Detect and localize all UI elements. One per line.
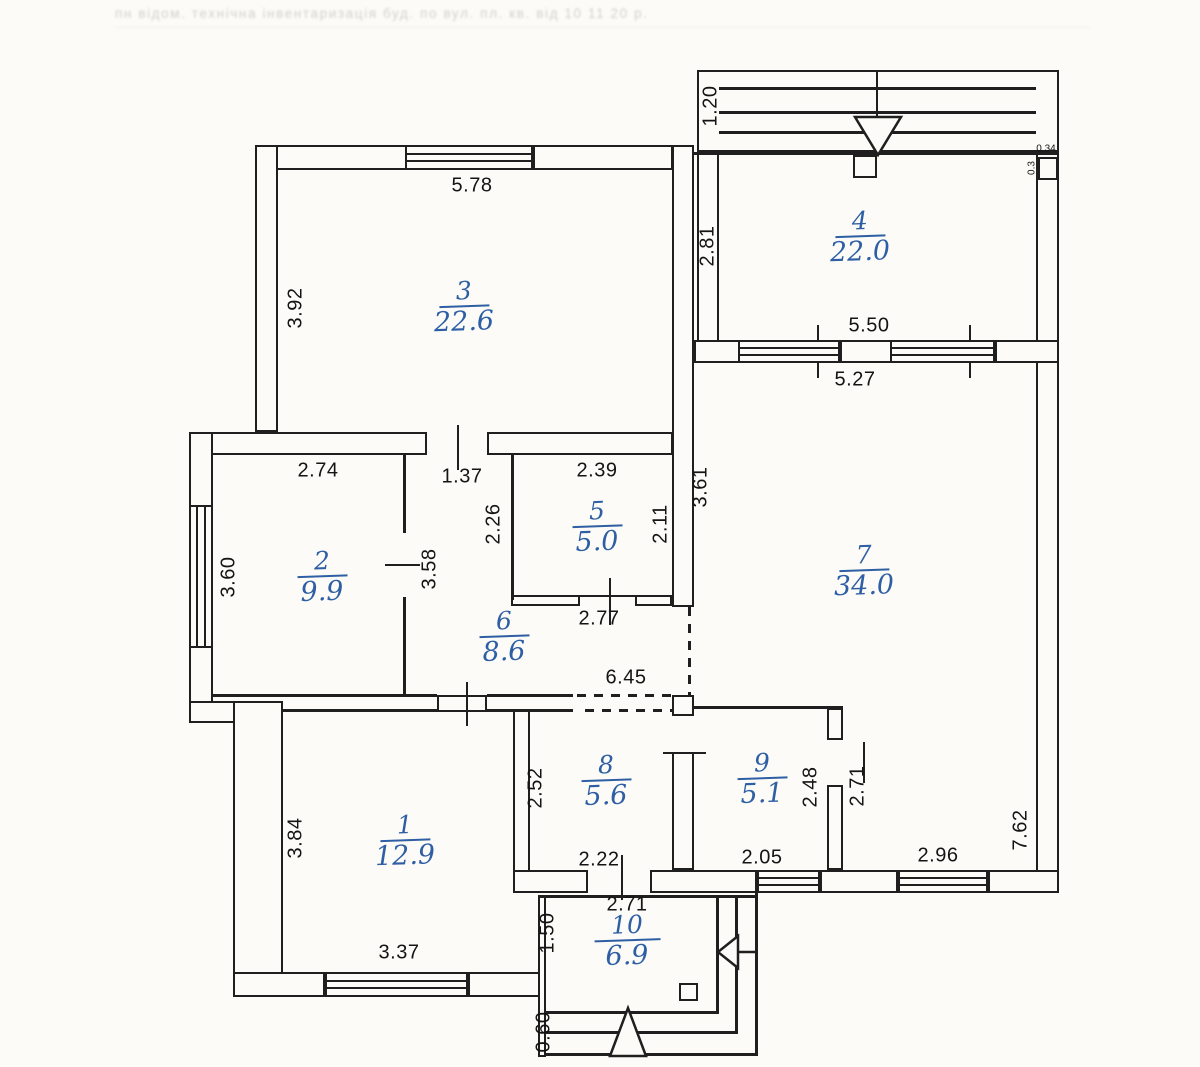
- wall-line: [716, 898, 719, 1013]
- wall-segment: [255, 145, 278, 432]
- dimension-label: 3.37: [379, 942, 420, 965]
- wall-line: [283, 709, 437, 712]
- dimension-label: 1.50: [537, 913, 560, 954]
- room-area: 8.6: [479, 637, 530, 669]
- room-area: 5.0: [572, 527, 623, 559]
- room-number: 9: [737, 749, 788, 780]
- wall-segment: [820, 870, 898, 893]
- window-icon: [757, 870, 820, 893]
- window-icon: [189, 505, 213, 648]
- dimension-label: 2.71: [607, 894, 648, 917]
- wall-line: [457, 425, 459, 470]
- wall-line: [876, 70, 878, 118]
- dimension-label: 2.22: [579, 849, 620, 872]
- dimension-label: 2.71: [847, 766, 870, 807]
- wall-line: [487, 709, 573, 712]
- dimension-label: 1.20: [700, 86, 723, 127]
- dimension-label: 3.92: [285, 288, 308, 329]
- room-number: 1: [380, 811, 431, 842]
- room-number: 7: [839, 541, 890, 572]
- room-area: 22.0: [829, 236, 890, 268]
- dimension-label: 0.3: [1027, 161, 1038, 175]
- wall-segment: [1036, 70, 1059, 893]
- dimension-label: 6.45: [606, 667, 647, 690]
- wall-segment: [533, 145, 673, 170]
- wall-line: [719, 131, 1036, 134]
- wall-segment: [487, 432, 673, 455]
- wall-segment: [853, 155, 877, 178]
- wall-line: [735, 898, 738, 1033]
- room-number: 2: [297, 547, 348, 578]
- room-label-7: 734.0: [834, 542, 894, 601]
- wall-line: [546, 1053, 758, 1056]
- dimension-label: 5.27: [835, 369, 876, 392]
- wall-segment: [650, 870, 757, 893]
- wall-line: [663, 752, 706, 754]
- window-icon: [890, 340, 995, 363]
- dimension-label: 2.05: [742, 847, 783, 870]
- open-boundary-dashed: [585, 709, 672, 712]
- room-label-8: 85.6: [581, 752, 631, 811]
- room-area: 22.6: [433, 306, 494, 338]
- wall-segment: [672, 695, 694, 716]
- dimension-label: 2.81: [697, 226, 720, 267]
- dimension-label: 2.39: [577, 460, 618, 483]
- room-label-10: 106.9: [594, 912, 660, 971]
- dimension-label: 1.37: [442, 466, 483, 489]
- room-area: 9.9: [297, 577, 348, 609]
- wall-line: [694, 152, 1059, 155]
- room-label-5: 55.0: [572, 498, 622, 557]
- wall-segment: [189, 432, 427, 455]
- room-label-3: 322.6: [434, 278, 494, 337]
- dimension-label: 2.77: [579, 608, 620, 631]
- window-icon: [738, 340, 840, 363]
- wall-line: [755, 873, 758, 1055]
- wall-line: [385, 564, 420, 566]
- wall-segment: [233, 701, 283, 997]
- open-boundary-dashed: [688, 607, 691, 695]
- room-area: 34.0: [833, 570, 894, 602]
- open-boundary-dashed: [577, 694, 672, 697]
- dimension-label: 2.48: [800, 767, 823, 808]
- window-icon: [325, 972, 468, 997]
- room-label-9: 95.1: [737, 750, 787, 809]
- wall-segment: [672, 752, 694, 870]
- wall-line: [403, 455, 406, 533]
- wall-segment: [511, 595, 580, 606]
- window-icon: [405, 145, 533, 170]
- dimension-label: 3.60: [218, 557, 241, 598]
- wall-segment: [840, 340, 892, 363]
- dimension-label: 0.60: [533, 1012, 556, 1053]
- wall-segment: [513, 870, 588, 893]
- wall-segment: [694, 340, 740, 363]
- room-label-1: 112.9: [375, 812, 435, 871]
- room-area: 12.9: [374, 840, 435, 872]
- dimension-label: 3.84: [285, 818, 308, 859]
- dimension-label: 7.62: [1010, 810, 1033, 851]
- floor-plan-canvas: пн відом. технічна інвентаризація буд. п…: [0, 0, 1200, 1067]
- wall-line: [466, 682, 468, 726]
- wall-segment: [437, 695, 487, 712]
- dimension-label: 3.58: [419, 549, 442, 590]
- dimension-label: 5.78: [452, 175, 493, 198]
- room-number: 5: [572, 497, 623, 528]
- wall-line: [694, 706, 843, 709]
- room-label-6: 68.6: [479, 608, 529, 667]
- wall-segment: [988, 870, 1059, 893]
- faint-scanned-header-text: пн відом. технічна інвентаризація буд. п…: [115, 6, 1090, 28]
- wall-line: [580, 595, 635, 597]
- wall-line: [511, 455, 514, 600]
- window-icon: [898, 870, 988, 893]
- dimension-label: 2.74: [298, 460, 339, 483]
- dimension-label: 2.96: [918, 845, 959, 868]
- dimension-label: 5.50: [849, 315, 890, 338]
- wall-segment: [672, 145, 694, 607]
- wall-segment: [995, 340, 1059, 363]
- room-number: 8: [581, 751, 632, 782]
- dimension-label: 0.34: [1036, 144, 1055, 155]
- wall-line: [487, 694, 573, 697]
- wall-line: [546, 1031, 738, 1034]
- wall-segment: [468, 972, 540, 997]
- room-number: 4: [835, 207, 886, 238]
- wall-line: [546, 1011, 719, 1014]
- room-number: 6: [479, 607, 530, 638]
- room-area: 5.6: [581, 781, 632, 813]
- wall-segment: [635, 595, 672, 606]
- dimension-label: 2.52: [525, 768, 548, 809]
- room-number: 3: [439, 277, 490, 308]
- wall-line: [538, 895, 757, 898]
- wall-segment: [233, 972, 325, 997]
- room-label-2: 29.9: [297, 548, 347, 607]
- dimension-label: 2.11: [650, 504, 673, 543]
- dimension-label: 3.61: [690, 467, 713, 508]
- room-label-4: 422.0: [830, 208, 890, 267]
- wall-segment: [1038, 157, 1058, 180]
- wall-segment: [679, 983, 698, 1001]
- room-area: 6.9: [594, 940, 661, 973]
- wall-line: [403, 597, 406, 696]
- wall-segment: [827, 708, 843, 740]
- wall-segment: [827, 785, 843, 870]
- room-area: 5.1: [737, 779, 788, 811]
- dimension-label: 2.26: [483, 504, 506, 545]
